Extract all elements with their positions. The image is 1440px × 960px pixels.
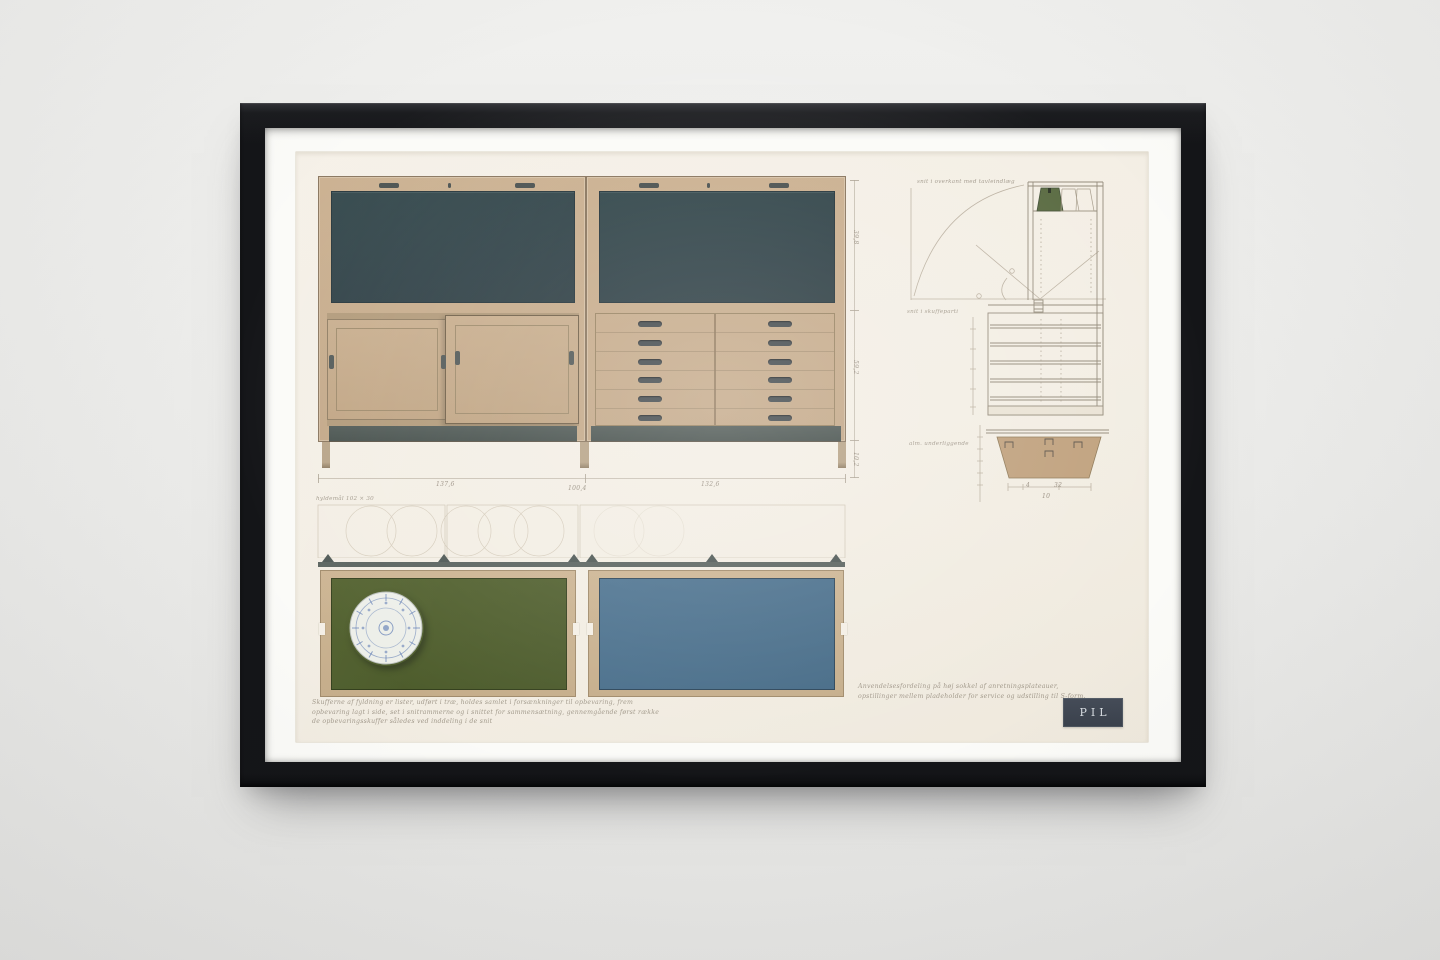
mat-notch — [573, 623, 579, 635]
cabinet-unit-right — [586, 176, 846, 442]
drawer-column-divider — [714, 314, 716, 425]
bracket-triangle — [568, 554, 580, 562]
drawer-pull — [768, 359, 792, 365]
dim-tick — [850, 477, 859, 478]
section-label: alm. underliggende — [909, 441, 969, 447]
drawer-pull — [638, 377, 662, 383]
dim-tick — [850, 440, 859, 441]
drawer-pull — [638, 415, 662, 421]
display-panel — [331, 191, 575, 303]
door-pull — [455, 351, 460, 365]
bracket-triangle — [586, 554, 598, 562]
shelf-section-bar — [318, 562, 845, 567]
drawer-pull — [638, 340, 662, 346]
mat-notch — [319, 623, 325, 635]
mat-board: 137,6 100,4 132,6 39,8 59,2 10,2 — [265, 128, 1181, 762]
pil-plaque-label: PIL — [1075, 706, 1110, 719]
sliding-door-bay — [327, 313, 579, 426]
drawer-pull — [638, 396, 662, 402]
plinth — [591, 426, 841, 441]
hinge-mark — [639, 183, 659, 188]
cabinet-unit-left — [318, 176, 586, 442]
caption-line: Skufferne af fyldning er lister, udført … — [312, 698, 622, 708]
bracket-triangle — [438, 554, 450, 562]
dim-line-vertical — [854, 180, 855, 478]
note-handwriting: Anvendelsesfordeling på høj sokkel af an… — [858, 682, 1048, 701]
plate-decoration — [348, 590, 424, 666]
drawer-grid — [595, 313, 835, 426]
drawer-pull — [768, 396, 792, 402]
gallery-wall: 137,6 100,4 132,6 39,8 59,2 10,2 — [0, 0, 1440, 960]
bracket-triangle — [830, 554, 842, 562]
drawer-pull — [768, 415, 792, 421]
dim-label: 137,6 — [436, 481, 455, 488]
display-panel — [599, 191, 835, 303]
dim-label: 10 — [1042, 493, 1050, 500]
pil-plaque: PIL — [1063, 698, 1123, 727]
dim-label: 32 — [1054, 482, 1062, 489]
bracket-triangle — [706, 554, 718, 562]
plan-outline-drawing — [314, 492, 848, 558]
caption-handwriting: Skufferne af fyldning er lister, udført … — [312, 698, 622, 727]
caption-line: opbevaring lagt i side, set i snitrammer… — [312, 708, 622, 718]
mat-notch — [841, 623, 847, 635]
dim-tick — [585, 474, 586, 483]
plate — [348, 590, 424, 666]
hinge-mark — [379, 183, 399, 188]
cabinet-leg — [322, 442, 330, 468]
bracket-triangle — [322, 554, 334, 562]
dim-label: 4 — [1026, 482, 1030, 489]
plan-surface-blue — [599, 578, 835, 690]
drawer-pull — [768, 340, 792, 346]
dim-tick — [850, 310, 859, 311]
section-label: snit i overkant med tavleindlæg — [917, 179, 1015, 185]
drawer-pull — [638, 321, 662, 327]
dim-label: 59,2 — [852, 360, 859, 375]
dim-tick — [850, 180, 859, 181]
plan-top-green — [320, 570, 576, 697]
cabinet-leg — [580, 442, 589, 468]
door-panel-outline — [455, 325, 569, 414]
door-pull — [569, 351, 574, 365]
dim-line-horizontal — [318, 478, 846, 479]
latch-mark — [448, 183, 451, 188]
door-pull — [441, 355, 446, 369]
section-detail-drawing — [901, 174, 1136, 514]
note-line: opstillinger mellem pladeholder for serv… — [858, 692, 1048, 702]
door-pull — [329, 355, 334, 369]
drawer-pull — [768, 321, 792, 327]
dim-label: 132,6 — [701, 481, 720, 488]
dim-tick — [845, 474, 846, 483]
mat-notch — [587, 623, 593, 635]
dim-label: 10,2 — [852, 452, 859, 467]
drawer-pull — [768, 377, 792, 383]
dim-tick — [318, 474, 319, 483]
drawing-sheet: 137,6 100,4 132,6 39,8 59,2 10,2 — [296, 152, 1148, 742]
plan-top-blue — [588, 570, 844, 697]
plinth — [329, 426, 577, 441]
picture-frame: 137,6 100,4 132,6 39,8 59,2 10,2 — [240, 103, 1206, 787]
sliding-door-left — [327, 319, 447, 420]
latch-mark — [707, 183, 710, 188]
section-label: snit i skuffeparti — [907, 309, 958, 315]
drawer-pull — [638, 359, 662, 365]
dim-label: 100,4 — [568, 485, 587, 492]
hinge-mark — [769, 183, 789, 188]
dim-label: 39,8 — [852, 230, 859, 245]
sliding-door-right — [445, 315, 579, 424]
door-panel-outline — [336, 328, 438, 411]
caption-line: de opbevaringsskuffer således ved inddel… — [312, 717, 622, 727]
cabinet-leg — [838, 442, 846, 468]
note-line: Anvendelsesfordeling på høj sokkel af an… — [858, 682, 1048, 692]
hinge-mark — [515, 183, 535, 188]
